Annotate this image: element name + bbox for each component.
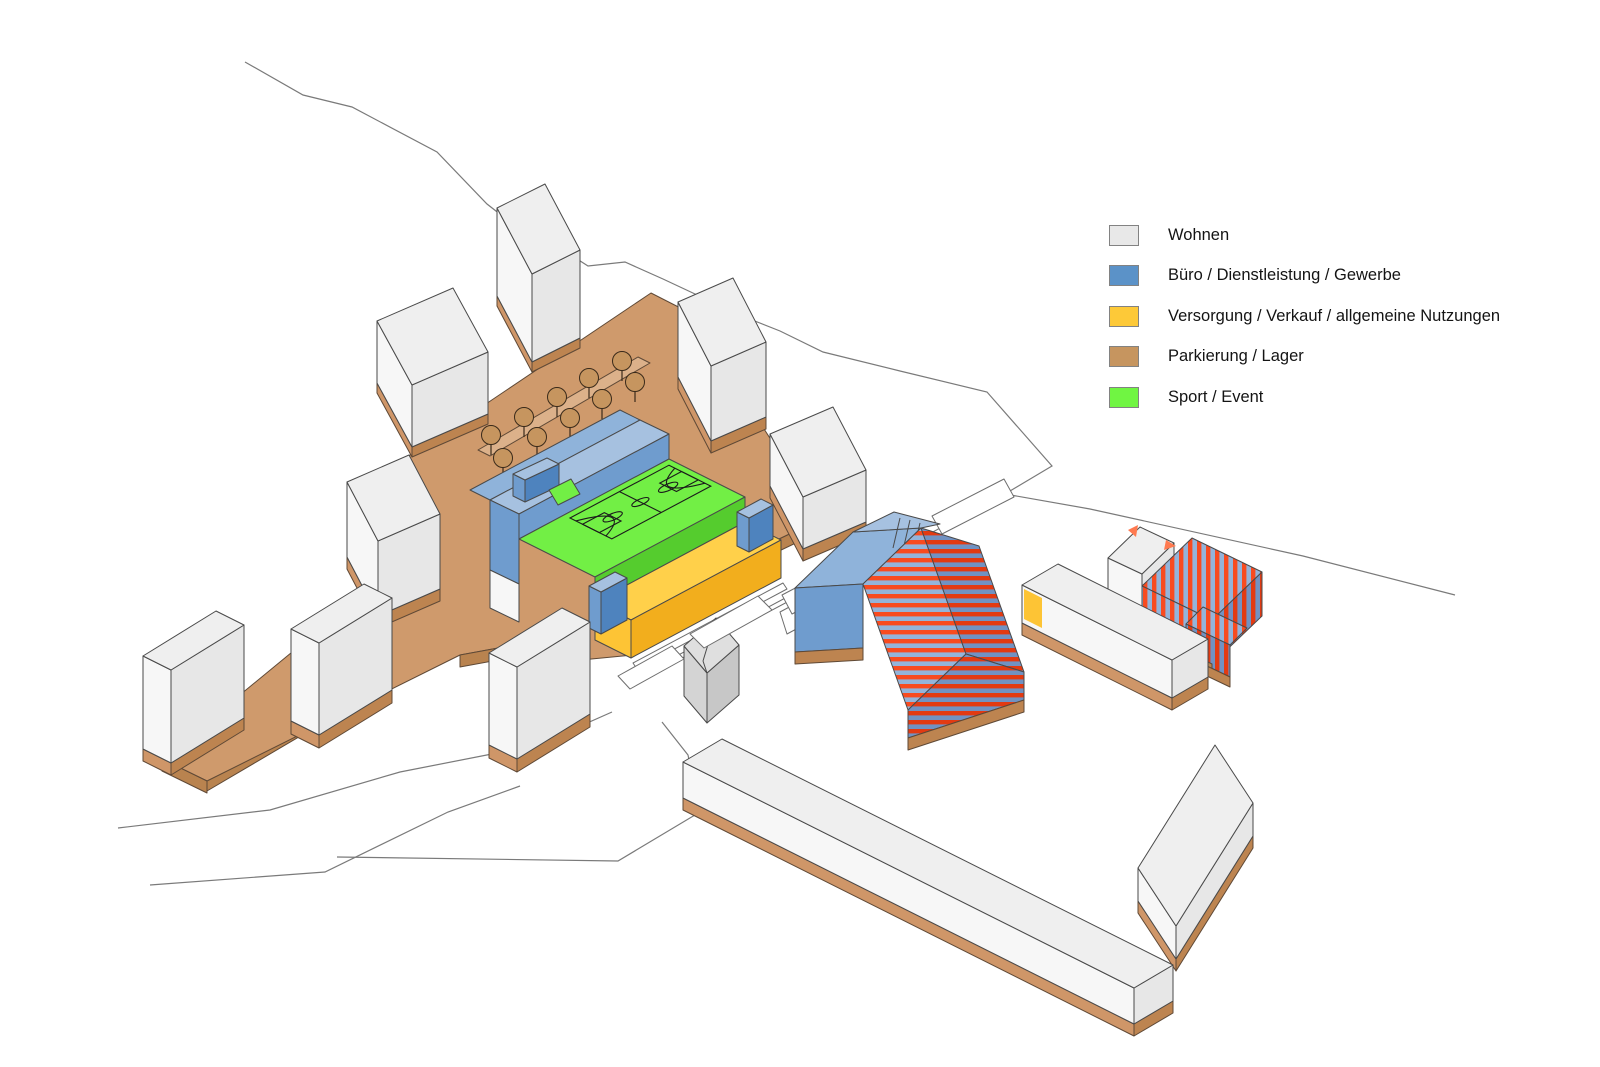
legend-swatch-versorgung: [1109, 306, 1139, 327]
legend-label-wohnen: Wohnen: [1168, 226, 1229, 245]
legend-row-versorgung: Versorgung / Verkauf / allgemeine Nutzun…: [1109, 305, 1500, 327]
legend-swatch-sport: [1109, 387, 1139, 408]
legend-label-buero: Büro / Dienstleistung / Gewerbe: [1168, 266, 1401, 285]
housing-slab-long: [683, 739, 1173, 1036]
striped-hall-horizontal: [863, 528, 1024, 750]
legend-swatch-wohnen: [1109, 225, 1139, 246]
legend-label-parkierung: Parkierung / Lager: [1168, 347, 1304, 366]
housing-slab-right: [1138, 745, 1253, 971]
office-slab-face-sw: [490, 500, 519, 584]
legend-label-sport: Sport / Event: [1168, 388, 1263, 407]
housing-block-lowleft-2: [291, 584, 392, 748]
legend-label-versorgung: Versorgung / Verkauf / allgemeine Nutzun…: [1168, 307, 1500, 326]
legend: Wohnen Büro / Dienstleistung / Gewerbe V…: [1109, 224, 1500, 408]
site-plan-page: Wohnen Büro / Dienstleistung / Gewerbe V…: [0, 0, 1600, 1067]
axonometric-site-diagram: [0, 0, 1600, 1067]
legend-row-buero: Büro / Dienstleistung / Gewerbe: [1109, 265, 1500, 287]
legend-row-sport: Sport / Event: [1109, 386, 1500, 408]
hall-wall-sw: [795, 584, 863, 652]
housing-tower-top: [497, 184, 580, 372]
housing-block-upper-left: [377, 288, 488, 457]
legend-swatch-parkierung: [1109, 346, 1139, 367]
legend-swatch-buero: [1109, 265, 1139, 286]
legend-row-parkierung: Parkierung / Lager: [1109, 346, 1500, 368]
legend-row-wohnen: Wohnen: [1109, 224, 1500, 246]
